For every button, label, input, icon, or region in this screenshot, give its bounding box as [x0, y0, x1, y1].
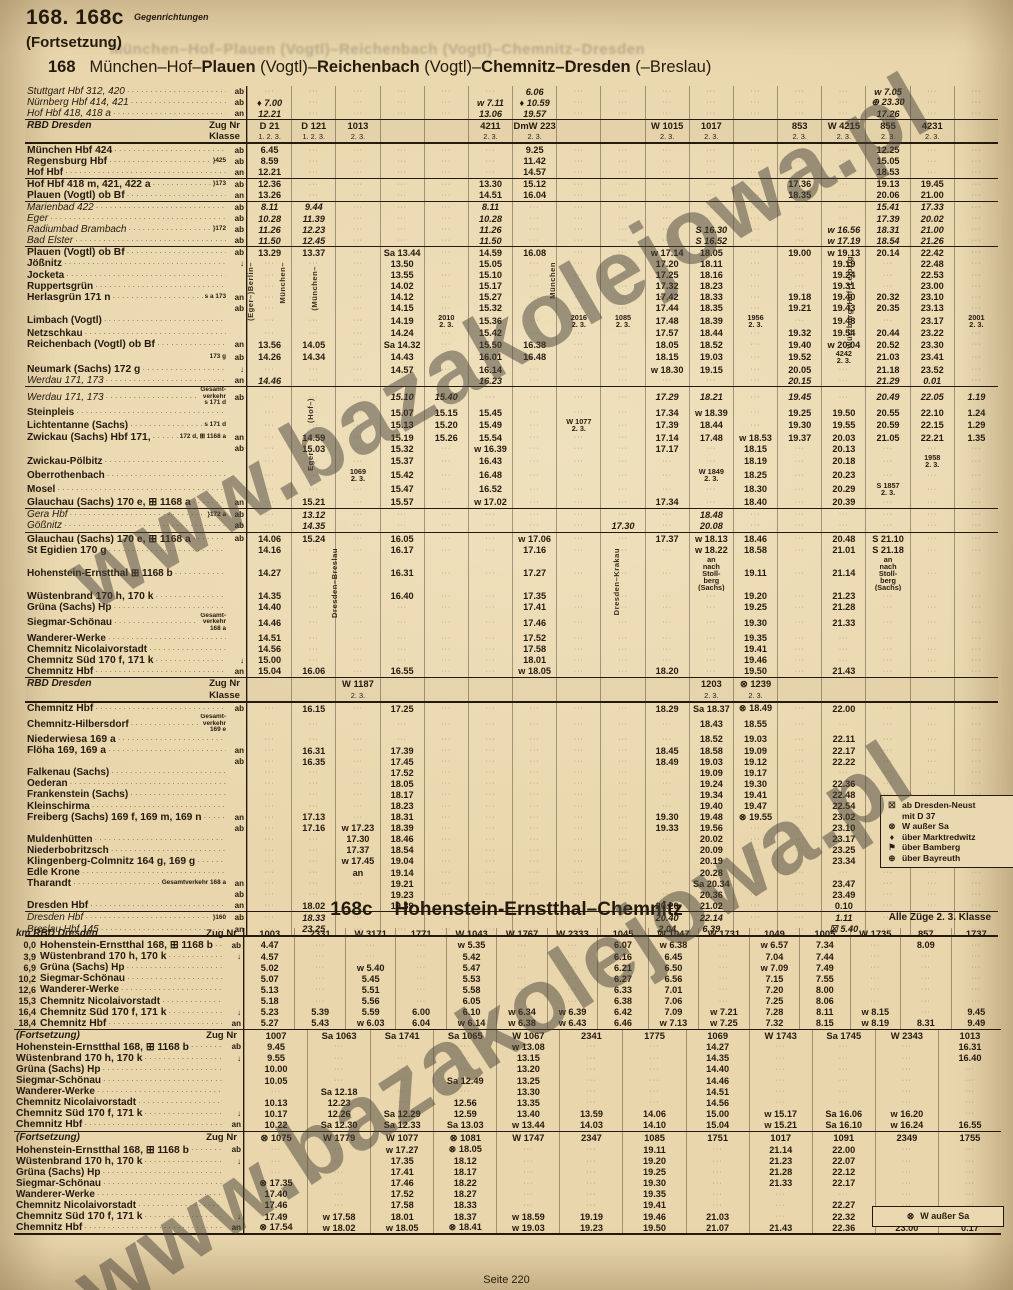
train-number: W 1743 — [749, 1030, 812, 1041]
time-cell: 18.05 — [645, 339, 689, 350]
direction-label: an — [228, 667, 246, 676]
time-cell: 13.29 — [247, 247, 291, 258]
time-cell: 15.19 — [380, 432, 424, 443]
time-cell: 19.24 — [821, 270, 865, 281]
time-cell: ··· — [424, 591, 468, 602]
table-row: Hof Hbf 418 m, 421, 422 a}173ab12.36····… — [25, 179, 998, 190]
time-cell: w 6.57 — [749, 939, 799, 951]
time-cell: ··· — [556, 407, 600, 418]
time-cell: 8.06 — [799, 995, 849, 1006]
time-cell: 19.48 — [689, 812, 733, 823]
time-cell: 17.25 — [380, 703, 424, 714]
time-cell: 16.38 — [512, 339, 556, 350]
time-cell: ··· — [689, 86, 733, 97]
leader-dots — [144, 1109, 223, 1118]
table-row: Marienbad 422ab8.119.44·········8.11····… — [25, 202, 998, 213]
time-cell: ··· — [559, 1053, 622, 1064]
leader-dots — [106, 376, 226, 385]
time-cell: 6.00 — [395, 1007, 445, 1018]
leader-dots — [144, 1212, 223, 1221]
station-label: Wanderer-Werke — [14, 1086, 244, 1097]
time-cell: 13.40 — [496, 1108, 559, 1119]
time-cell: w 13.08 — [496, 1041, 559, 1053]
time-cell: 19.03 — [689, 756, 733, 767]
time-cell: ··· — [291, 734, 335, 745]
klasse-value: 2. 3. — [335, 131, 379, 142]
time-cell: ··· — [380, 520, 424, 531]
time-cell: 21.18 — [865, 364, 909, 375]
time-cell: ··· — [910, 613, 954, 633]
time-cell: 22.21 — [910, 432, 954, 443]
time-cell: ··· — [689, 482, 733, 496]
direction-label: ab — [228, 521, 246, 530]
time-cell: ··· — [335, 167, 379, 178]
direction-label: ab — [225, 1145, 243, 1154]
station-label: Hof Hbf 418 m, 421, 422 a}173ab — [25, 179, 247, 190]
time-cell: ··· — [821, 655, 865, 666]
time-cell: 19.25 — [622, 1167, 685, 1178]
station-label: Herlasgrün 171 ns a 173an — [25, 292, 247, 303]
time-cell: ··· — [244, 1086, 307, 1097]
table-row: Grüna (Sachs) Hp14.40···············17.4… — [25, 602, 998, 613]
time-cell: 8.00 — [799, 984, 849, 995]
time-cell: ··· — [244, 1144, 307, 1156]
station-name: Niederbobritzsch — [27, 845, 109, 856]
time-cell: ··· — [380, 86, 424, 97]
direction-label: an — [228, 879, 246, 888]
klasse-value — [424, 690, 468, 701]
time-cell: 1.35 — [954, 432, 998, 443]
time-cell: ··· — [556, 644, 600, 655]
direction-label: ab — [225, 941, 243, 950]
time-cell: ··· — [291, 714, 335, 734]
time-cell: ··· — [600, 224, 644, 235]
klasse-label: Klasse — [209, 690, 246, 701]
time-cell: ··· — [291, 144, 335, 155]
time-cell: 18.01 — [512, 655, 556, 666]
time-cell: ··· — [938, 1189, 1001, 1200]
station-name: Grüna (Sachs) Hp — [27, 602, 111, 613]
klasse-value — [380, 690, 424, 701]
zugnr-label: Zug Nr — [206, 928, 243, 939]
time-cell: ··· — [556, 745, 600, 756]
table-168c: km RBD DresdenZug Nr10032331W 31711771W … — [14, 928, 1001, 1235]
time-cell: w 18.22 — [689, 545, 733, 556]
table-section: Stuttgart Hbf 312, 420ab················… — [25, 86, 998, 119]
time-cell: 17.48 — [689, 432, 733, 443]
time-cell: ··· — [865, 703, 909, 714]
km-value: 0,0 — [16, 940, 36, 950]
time-cell: ··· — [335, 482, 379, 496]
station-label: Netzschkau — [25, 328, 247, 339]
time-cell: 22.48 — [821, 789, 865, 800]
time-cell: 18.58 — [689, 745, 733, 756]
time-cell: ··· — [645, 190, 689, 201]
time-cell: 15.00 — [247, 655, 291, 666]
time-cell: ··· — [733, 156, 777, 167]
table-row: (Fortsetzung)Zug Nr1007Sa 1063Sa 1741Sa … — [14, 1030, 1001, 1041]
time-cell: 14.46 — [247, 613, 291, 633]
table-row: Gera Hbf}172 aab···13.12················… — [25, 509, 998, 520]
table-row: 18,4Chemnitz Hbfan5.275.43w 6.036.04w 6.… — [14, 1018, 1001, 1029]
time-cell: ··· — [424, 258, 468, 269]
leader-dots — [97, 1190, 223, 1199]
time-cell: 19.50 — [622, 1222, 685, 1233]
time-cell: ··· — [424, 644, 468, 655]
time-cell: ··· — [345, 951, 395, 962]
time-cell: 14.02 — [380, 281, 424, 292]
station-name: Zwickau-Pölbitz — [27, 456, 103, 467]
time-cell: ··· — [645, 867, 689, 878]
direction-label: an — [228, 191, 246, 200]
table-row: Chemnitz Süd 170 f, 171 k↓15.00·········… — [25, 655, 998, 666]
time-cell: ··· — [777, 703, 821, 714]
time-cell: ··· — [496, 1156, 559, 1167]
time-cell: ··· — [512, 823, 556, 834]
time-cell: ··· — [900, 995, 950, 1006]
time-cell: ··· — [496, 995, 546, 1006]
time-cell: ··· — [556, 823, 600, 834]
station-name: Freiberg (Sachs) 169 f, 169 m, 169 n — [27, 812, 202, 823]
time-cell: 15.12 — [512, 179, 556, 190]
table-row: Radiumbad Brambach}172ab11.2612.23······… — [25, 224, 998, 235]
time-cell: 6.07 — [597, 939, 647, 951]
time-cell: ··· — [380, 235, 424, 246]
time-cell: ··· — [733, 328, 777, 339]
time-cell: ··· — [865, 454, 909, 468]
legend-text: ab Dresden-Neustmit D 37 — [902, 800, 976, 821]
train-number: 1013 — [938, 1030, 1001, 1041]
time-cell: ··· — [247, 509, 291, 520]
time-cell: 22.32 — [812, 1211, 875, 1222]
train-number: W 1747 — [496, 1132, 559, 1144]
time-cell: ··· — [291, 556, 335, 591]
time-cell: 12.59 — [433, 1108, 496, 1119]
time-cell: ··· — [424, 443, 468, 454]
table-row: RBD DresdenZug NrD 21D 12110134211DmW 22… — [25, 120, 998, 131]
time-cell: 14.35 — [686, 1053, 749, 1064]
time-cell: 19.15 — [689, 364, 733, 375]
direction-label: an — [228, 293, 246, 302]
station-label: Gera Hbf}172 aab — [25, 509, 247, 520]
time-cell: ··· — [900, 1007, 950, 1018]
table-row: Hof Hbf 418, 418 aan12.21············13.… — [25, 108, 998, 119]
station-label: Radiumbad Brambach}172ab — [25, 224, 247, 235]
station-name: Stuttgart Hbf 312, 420 — [27, 86, 125, 97]
time-cell: 19.24 — [689, 778, 733, 789]
time-cell: ··· — [335, 387, 379, 407]
time-cell: 20.09 — [689, 845, 733, 856]
station-label: Chemnitz Süd 170 f, 171 k↓ — [25, 655, 247, 666]
time-cell: ··· — [910, 496, 954, 508]
table-row: Grüna (Sachs) Hp10.00·········13.20·····… — [14, 1064, 1001, 1075]
time-cell: 7.49 — [799, 962, 849, 973]
table-row: Chemnitz Süd 170 f, 171 k↓10.1712.26Sa 1… — [14, 1108, 1001, 1119]
time-cell: ··· — [733, 867, 777, 878]
time-cell: 13.50 — [380, 258, 424, 269]
leader-dots — [162, 997, 223, 1006]
time-cell: ··· — [954, 655, 998, 666]
time-cell: ··· — [689, 602, 733, 613]
direction-label: ↓ — [228, 365, 246, 374]
time-cell: ··· — [468, 533, 512, 545]
time-cell: 17.52 — [370, 1189, 433, 1200]
time-cell: ··· — [777, 468, 821, 482]
time-cell: ··· — [910, 703, 954, 714]
klasse-value — [556, 690, 600, 701]
station-name: Muldenhütten — [27, 834, 93, 845]
time-cell: ··· — [307, 1178, 370, 1189]
time-cell: ··· — [468, 613, 512, 633]
time-cell: ··· — [865, 443, 909, 454]
station-name: Chemnitz Süd 170 f, 171 k — [16, 1108, 142, 1119]
time-cell: ··· — [938, 1086, 1001, 1097]
time-cell: ··· — [777, 778, 821, 789]
legend-text: W außer Sa — [902, 821, 949, 832]
train-number — [600, 120, 644, 131]
station-name: Marienbad 422 — [27, 202, 94, 213]
time-cell: ··· — [380, 509, 424, 520]
time-cell: ··· — [645, 845, 689, 856]
station-label: 0,0Hohenstein-Ernstthal 168, ⊞ 1168 bab — [14, 939, 244, 951]
time-cell: ··· — [865, 496, 909, 508]
time-cell: ··· — [335, 556, 379, 591]
legend-text: über Bayreuth — [902, 853, 960, 864]
time-cell: 18.58 — [733, 545, 777, 556]
direction-label: ↓ — [225, 952, 243, 961]
time-cell: 19.30 — [622, 1178, 685, 1189]
time-cell: 19.34 — [689, 789, 733, 800]
time-cell: 22.27 — [812, 1200, 875, 1211]
time-cell: ··· — [777, 745, 821, 756]
klasse-value: 2. 3. — [777, 131, 821, 142]
klasse-value: 1. 2. 3. — [291, 131, 335, 142]
time-cell: ··· — [698, 951, 748, 962]
time-cell: ··· — [424, 613, 468, 633]
train-number: 857 — [900, 928, 950, 939]
table-row: ab···17.16w 17.2318.39···············19.… — [25, 823, 998, 834]
time-cell: 18.27 — [433, 1189, 496, 1200]
time-cell: ··· — [600, 270, 644, 281]
time-cell: ··· — [556, 443, 600, 454]
time-cell: ··· — [600, 432, 644, 443]
time-cell: ··· — [307, 1064, 370, 1075]
train-number: W 1779 — [307, 1132, 370, 1144]
station-name: Hohenstein-Ernstthal 168, ⊞ 1168 b — [40, 939, 213, 951]
time-cell: 17.27 — [512, 556, 556, 591]
table-row: Grüna (Sachs) Hp······17.4118.17······19… — [14, 1167, 1001, 1178]
time-cell: 15.57 — [380, 496, 424, 508]
time-cell: ··· — [733, 235, 777, 246]
time-cell: ··· — [468, 767, 512, 778]
leader-dots — [127, 248, 226, 257]
vertical-route-label: Würzburg–Hof–Leipzig — [845, 256, 854, 349]
train-number: 1751 — [686, 1132, 749, 1144]
station-name: Chemnitz Süd 170 f, 171 k — [27, 655, 153, 666]
time-cell: 16.48 — [512, 350, 556, 364]
legend-symbol: ⊗ — [907, 1211, 915, 1222]
time-cell: ··· — [559, 1075, 622, 1086]
time-cell: Sa 16.10 — [812, 1119, 875, 1130]
time-cell: ··· — [910, 97, 954, 108]
time-cell: ··· — [954, 482, 998, 496]
time-cell: ··· — [600, 545, 644, 556]
time-cell: ··· — [777, 845, 821, 856]
time-cell: ··· — [865, 602, 909, 613]
time-cell: ··· — [689, 443, 733, 454]
time-cell: 14.06 — [622, 1108, 685, 1119]
station-name: Chemnitz Hbf — [16, 1119, 82, 1130]
leader-dots — [193, 498, 226, 507]
time-cell: 19.50 — [821, 407, 865, 418]
klasse-value — [247, 690, 291, 701]
time-cell: ··· — [291, 633, 335, 644]
time-cell: ··· — [954, 156, 998, 167]
station-name: Jößnitz — [27, 258, 62, 269]
station-name: Werdau 171, 173 — [27, 392, 104, 403]
title-part: Chemnitz–Dresden — [481, 58, 630, 76]
time-cell: ··· — [370, 1041, 433, 1053]
direction-label: ↓ — [225, 1157, 243, 1166]
time-cell: 19.40 — [689, 800, 733, 811]
table-row: Wüstenbrand 170 h, 170 k↓······17.3518.1… — [14, 1156, 1001, 1167]
time-cell: ··· — [689, 156, 733, 167]
train-number — [733, 120, 777, 131]
train-number: W 1767 — [496, 928, 546, 939]
leader-dots — [97, 1087, 223, 1096]
table-section: RBD DresdenZug NrW 11871203⊗ 1239Klasse2… — [25, 677, 998, 702]
train-number — [291, 678, 335, 690]
time-cell: ··· — [850, 973, 900, 984]
leader-dots — [102, 1065, 223, 1074]
station-label: Glauchau (Sachs) 170 e, ⊞ 1168 aab — [25, 533, 247, 545]
time-cell: ··· — [291, 767, 335, 778]
time-cell: ··· — [645, 613, 689, 633]
time-cell: 14.51 — [686, 1086, 749, 1097]
time-cell: 15.00 — [686, 1108, 749, 1119]
time-cell: ··· — [512, 867, 556, 878]
time-cell: ··· — [424, 235, 468, 246]
time-cell: ··· — [910, 167, 954, 178]
time-cell: ··· — [556, 496, 600, 508]
train-number — [512, 678, 556, 690]
time-cell: 15.05 — [865, 156, 909, 167]
station-name: Grüna (Sachs) Hp — [16, 1064, 100, 1075]
time-cell: ··· — [689, 179, 733, 190]
table-row: Klasse1. 2. 3.1. 2. 3.2. 3.2. 3.2. 3.2. … — [25, 131, 998, 142]
time-cell: ··· — [547, 939, 597, 951]
time-cell: ··· — [380, 97, 424, 108]
time-cell: 7.32 — [749, 1018, 799, 1029]
train-number — [424, 120, 468, 131]
time-cell: 6.21 — [597, 962, 647, 973]
time-cell: ··· — [512, 845, 556, 856]
time-cell: 18.22 — [433, 1178, 496, 1189]
table-row: Werdau 171, 173Gesamt-verkehrs 171 dab··… — [25, 387, 998, 407]
leader-dots — [127, 974, 223, 983]
train-number — [777, 678, 821, 690]
time-cell: 19.04 — [380, 856, 424, 867]
time-cell: 17.35 — [512, 591, 556, 602]
legend-symbol: ⊕ — [887, 853, 897, 864]
time-cell: w 7.25 — [698, 1018, 748, 1029]
train-number — [380, 678, 424, 690]
time-cell: ··· — [247, 387, 291, 407]
leader-dots — [157, 340, 226, 349]
train-number: 1091 — [812, 1132, 875, 1144]
train-number: ⊗ 1075 — [244, 1132, 307, 1144]
station-name: Grüna (Sachs) Hp — [16, 1167, 100, 1178]
time-cell: ··· — [733, 418, 777, 432]
time-cell: ··· — [468, 856, 512, 867]
leader-dots — [114, 618, 198, 627]
time-cell: 15.32 — [380, 443, 424, 454]
klasse-header-label: Klasse — [25, 131, 247, 142]
time-cell: ··· — [335, 247, 379, 258]
time-cell: ··· — [865, 468, 909, 482]
time-cell: ··· — [910, 644, 954, 655]
time-cell: ··· — [556, 878, 600, 889]
time-cell: 19.46 — [733, 655, 777, 666]
time-cell: 20.06 — [865, 190, 909, 201]
station-name: Mosel — [27, 484, 55, 495]
time-cell: ··· — [689, 97, 733, 108]
time-cell: ··· — [424, 247, 468, 258]
station-name: Kleinschirma — [27, 801, 90, 812]
time-cell: ··· — [954, 303, 998, 314]
time-cell: ··· — [733, 144, 777, 155]
time-cell: 18.19 — [733, 454, 777, 468]
time-cell: ··· — [380, 734, 424, 745]
time-cell: ··· — [777, 86, 821, 97]
time-cell: ··· — [600, 714, 644, 734]
time-cell: ··· — [698, 939, 748, 951]
time-cell: ··· — [777, 454, 821, 468]
station-label: Regensburg Hbf}425ab — [25, 156, 247, 167]
leader-dots — [193, 534, 226, 543]
time-cell: ··· — [910, 156, 954, 167]
legend-symbol: ☒ — [887, 800, 897, 821]
table-168-title: 168München–Hof–Plauen (Vogtl)–Reichenbac… — [48, 58, 1003, 77]
time-cell: ··· — [335, 443, 379, 454]
time-cell: ··· — [777, 97, 821, 108]
time-cell: ··· — [556, 86, 600, 97]
time-cell: ··· — [777, 281, 821, 292]
time-cell: 19.35 — [622, 1189, 685, 1200]
station-note: }173 — [213, 181, 226, 188]
time-cell: 18.55 — [733, 714, 777, 734]
time-cell: 11.26 — [468, 224, 512, 235]
time-cell: 14.35 — [247, 591, 291, 602]
time-cell: ··· — [512, 328, 556, 339]
time-cell: w 7.05 — [865, 86, 909, 97]
train-number: 1069 — [686, 1030, 749, 1041]
table-section: (Fortsetzung)Zug Nr1007Sa 1063Sa 1741Sa … — [14, 1029, 1001, 1131]
time-cell: 19.19 — [559, 1211, 622, 1222]
time-cell: 6.56 — [648, 973, 698, 984]
leader-dots — [191, 1042, 223, 1051]
time-cell: ··· — [954, 167, 998, 178]
time-cell: ··· — [645, 800, 689, 811]
time-cell: ··· — [468, 789, 512, 800]
time-cell: ··· — [291, 364, 335, 375]
station-name: Frankenstein (Sachs) — [27, 789, 128, 800]
time-cell: ··· — [733, 834, 777, 845]
time-cell: ··· — [380, 602, 424, 613]
time-cell: ··· — [335, 364, 379, 375]
time-cell: ··· — [954, 778, 998, 789]
time-cell: ··· — [865, 258, 909, 269]
